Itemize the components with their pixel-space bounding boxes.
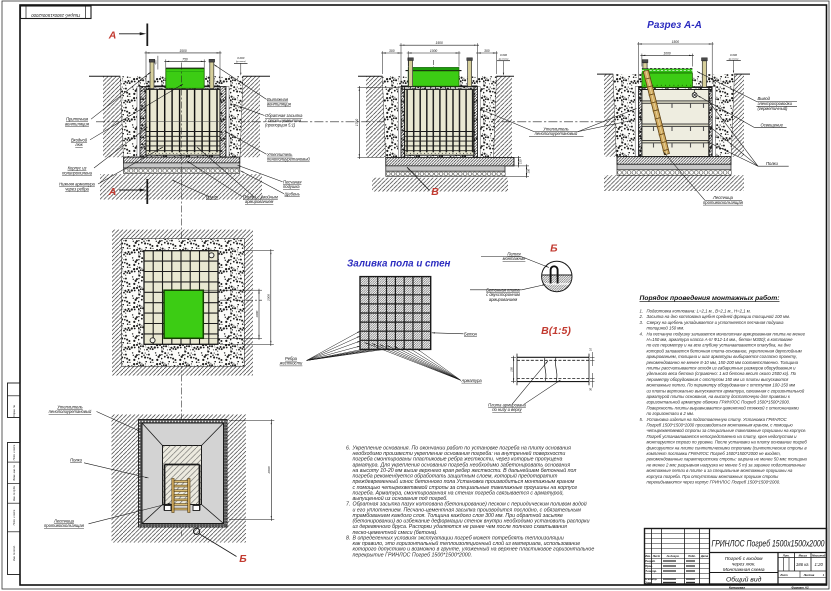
svg-text:Инв. № подл.: Инв. № подл. (13, 545, 16, 561)
svg-text:по его периметру и на всю глуб: по его периметру и на всю глубину устана… (647, 343, 792, 348)
svg-text:Подп. и дата: Подп. и дата (13, 444, 16, 460)
svg-text:Заливка пола и стен: Заливка пола и стен (347, 259, 451, 270)
svg-text:Копировал: Копировал (729, 586, 745, 590)
svg-text:Полки: Полки (70, 457, 83, 462)
svg-text:(пропорция 5:1): (пропорция 5:1) (265, 123, 296, 128)
svg-text:через ребра: через ребра (65, 186, 89, 191)
svg-text:300: 300 (389, 49, 395, 53)
svg-text:8.: 8. (346, 535, 350, 541)
svg-text:Разраб.: Разраб. (645, 559, 655, 563)
svg-text:Монтажная схема: Монтажная схема (723, 567, 765, 573)
svg-text:Сверху на щебень укладывается: Сверху на щебень укладывается и уплотняе… (647, 320, 785, 325)
svg-text:Масса: Масса (799, 554, 808, 558)
svg-text:0.000: 0.000 (237, 56, 244, 60)
svg-text:армированием, толщина и шаг ар: армированием, толщина и шаг арматуры выб… (647, 354, 797, 359)
svg-text:1000: 1000 (430, 49, 438, 53)
svg-text:(ур.земли): (ур.земли) (236, 61, 246, 63)
svg-text:Масштаб: Масштаб (812, 554, 826, 558)
svg-text:1.: 1. (640, 309, 644, 314)
svg-text:подушка: подушка (283, 184, 300, 189)
svg-text:В(1:5): В(1:5) (541, 325, 571, 337)
svg-text:вентиляция: вентиляция (267, 102, 292, 107)
svg-text:5.: 5. (640, 417, 644, 422)
svg-text:противоскользящая: противоскользящая (44, 523, 85, 528)
svg-text:10: 10 (588, 348, 592, 351)
svg-text:вентиляция: вентиляция (65, 121, 90, 126)
svg-text:горизонтальной арматуре обвязк: горизонтальной арматуре обвязки ГРИНЛОС … (647, 400, 791, 405)
svg-text:удельного веса бетона (справоч: удельного веса бетона (справочно: 1 м3 б… (646, 371, 797, 376)
svg-text:А: А (108, 30, 117, 42)
svg-text:ГРИНЛОС Погреб 1500х1500х2000: ГРИНЛОС Погреб 1500х1500х2000 (712, 539, 826, 549)
svg-text:фиксируется на плите синтетиче: фиксируется на плите синтетическими стро… (647, 445, 808, 450)
svg-text:Листов: Листов (803, 573, 815, 577)
svg-text:(ур.земли): (ур.земли) (728, 58, 738, 60)
svg-text:100: 100 (526, 168, 530, 173)
svg-text:А: А (108, 186, 117, 198)
svg-text:через люк.: через люк. (732, 562, 756, 567)
svg-text:корпуса погреба. При отсутстви: корпуса погреба. При отсутствии монтажны… (647, 474, 780, 479)
svg-text:арматурой плиты основания, на: арматурой плиты основания, на высоту дос… (647, 394, 791, 399)
svg-text:Утв.: Утв. (645, 581, 652, 585)
svg-text:450: 450 (154, 60, 158, 65)
svg-text:Формат А3: Формат А3 (791, 586, 809, 590)
svg-text:Засыпка на дно котлована щебня: Засыпка на дно котлована щебня средней ф… (647, 314, 791, 319)
svg-text:Погреб 1500*1500*2000 производ: Погреб 1500*1500*2000 производиться монт… (647, 423, 794, 428)
svg-text:Пров.: Пров. (645, 564, 653, 568)
svg-text:Бетон: Бетон (464, 331, 478, 336)
svg-text:30: 30 (588, 388, 592, 391)
svg-text:1000: 1000 (663, 51, 671, 55)
svg-text:1000: 1000 (255, 310, 259, 317)
svg-text:1500: 1500 (672, 40, 680, 44)
svg-text:Изм.: Изм. (645, 554, 651, 558)
svg-text:0.000: 0.000 (730, 53, 737, 57)
svg-text:2000: 2000 (267, 466, 271, 474)
svg-text:6.: 6. (346, 446, 350, 452)
svg-text:1700: 1700 (355, 119, 359, 127)
svg-text:Полки: Полки (766, 161, 779, 166)
svg-text:№ докум.: № докум. (667, 554, 680, 558)
svg-text:не менее 2 мм; разрывная нагру: не менее 2 мм; разрывная нагрузка не мен… (647, 462, 807, 467)
svg-text:Подп.: Подп. (688, 554, 696, 558)
svg-text:Лит.: Лит. (782, 554, 790, 558)
svg-text:1:20: 1:20 (815, 562, 824, 567)
svg-text:Б: Б (239, 553, 247, 565)
svg-text:750: 750 (182, 57, 188, 61)
svg-text:рекомендованно не менее 8-10 м: рекомендованно не менее 8-10 мм, 150-200… (646, 360, 799, 365)
svg-text:пенополиуретановый: пенополиуретановый (267, 157, 310, 162)
svg-text:Поверхность плиты выравниваетс: Поверхность плиты выравнивается цементно… (647, 405, 800, 410)
svg-text:по горизонтали в 2 мм.: по горизонтали в 2 мм. (647, 411, 695, 416)
svg-text:Справ. №: Справ. № (12, 405, 16, 417)
svg-text:В: В (431, 186, 439, 198)
svg-text:перекидываются через корпус ГР: перекидываются через корпус ГРИНЛОС Погр… (647, 480, 781, 485)
svg-text:150: 150 (509, 367, 513, 372)
svg-text:полипропилена: полипропилена (62, 170, 93, 175)
svg-text:монтируется строго по уровню.: монтируется строго по уровню. После уста… (647, 440, 808, 445)
svg-text:Подп. и дата: Подп. и дата (13, 509, 16, 525)
svg-text:Погреб 1500х1500х2000: Погреб 1500х1500х2000 (31, 13, 81, 18)
svg-text:Арматура: Арматура (461, 378, 483, 383)
svg-text:Погреб устанавливается непосре: Погреб устанавливается непосредственно н… (647, 434, 798, 439)
svg-text:армированием: армированием (245, 199, 274, 204)
svg-text:жесткости: жесткости (279, 361, 303, 366)
svg-text:Щебень: Щебень (285, 191, 300, 196)
svg-text:рекомендованные характеристики: рекомендованные характеристики стропы: ш… (646, 457, 808, 462)
svg-text:186 кг.: 186 кг. (796, 562, 810, 567)
svg-text:(ур.земли): (ур.земли) (498, 59, 508, 61)
svg-text:150: 150 (518, 159, 522, 164)
svg-text:3.: 3. (640, 320, 644, 325)
svg-text:плиты рассчитывается исходя из: плиты рассчитывается исходя из габаритны… (647, 366, 797, 371)
svg-text:Установка изделия на подготовл: Установка изделия на подготовленную плит… (647, 417, 788, 422)
svg-text:Порядок проведения монтажных р: Порядок проведения монтажных работ: (640, 294, 780, 302)
svg-text:0.000: 0.000 (500, 53, 507, 57)
svg-text:которой заливается бетонная пл: которой заливается бетонная плита-основа… (647, 348, 802, 353)
svg-text:Т.контр.: Т.контр. (645, 569, 657, 573)
svg-text:1500: 1500 (436, 41, 444, 45)
svg-text:из плиты вертикально выпускают: из плиты вертикально выпускаются арматур… (647, 388, 805, 393)
svg-text:по низу и верху: по низу и верху (492, 407, 522, 412)
svg-text:Н.контр.: Н.контр. (645, 577, 657, 581)
svg-text:Дата: Дата (700, 554, 709, 558)
svg-text:комплект поставки ГРИНЛОС Погр: комплект поставки ГРИНЛОС Погреб 1500*15… (647, 451, 781, 456)
svg-text:перекрытие ГРИНЛОС Погреб 1500: перекрытие ГРИНЛОС Погреб 1500*1500*2000… (353, 552, 473, 558)
svg-text:пенополиуретановый: пенополиуретановый (49, 409, 92, 414)
svg-text:монтажные петли в плите и за с: монтажные петли в плите и за специальные… (647, 468, 793, 473)
svg-text:2.: 2. (639, 314, 644, 319)
svg-text:На песчаную подушку заливается: На песчаную подушку заливается монолитна… (647, 331, 806, 336)
svg-text:4.: 4. (640, 331, 644, 336)
svg-text:армированием: армированием (489, 297, 518, 302)
svg-text:пенополиуретановый: пенополиуретановый (535, 131, 578, 136)
svg-text:Разрез А-А: Разрез А-А (647, 20, 702, 31)
svg-text:Н=150 мм, арматура класса А-: Н=150 мм, арматура класса А-III Ф12-14 м… (647, 337, 794, 342)
svg-text:четырехветвевой стропы за спец: четырехветвевой стропы за специальные та… (647, 428, 807, 433)
svg-text:Общий вид: Общий вид (726, 575, 762, 583)
svg-text:Инв. № дубл.: Инв. № дубл. (13, 485, 16, 501)
svg-text:толщиной 150 мм.: толщиной 150 мм. (647, 326, 685, 331)
svg-text:Взам. инв. №: Взам. инв. № (13, 465, 16, 481)
svg-text:Подготовка котлована: L=2,1 м.: Подготовка котлована: L=2,1 м., B=2,1 м.… (647, 309, 751, 314)
svg-text:Погреб с входом: Погреб с входом (725, 556, 763, 562)
svg-text:люк: люк (74, 142, 83, 147)
svg-text:7.: 7. (346, 502, 350, 508)
svg-text:Грунт: Грунт (206, 194, 219, 199)
svg-text:периметру оборудования с отсту: периметру оборудования с отступом 150 мм… (647, 377, 790, 382)
svg-text:2000: 2000 (267, 294, 271, 302)
svg-text:монтажные петли. По периметру: монтажные петли. По периметру оборудован… (647, 383, 796, 388)
svg-text:1500: 1500 (179, 49, 187, 53)
svg-text:Лист: Лист (779, 573, 788, 577)
svg-text:Лист: Лист (652, 554, 661, 558)
svg-text:300: 300 (484, 49, 490, 53)
svg-text:Освещение: Освещение (761, 122, 784, 127)
svg-text:Б: Б (550, 243, 558, 255)
